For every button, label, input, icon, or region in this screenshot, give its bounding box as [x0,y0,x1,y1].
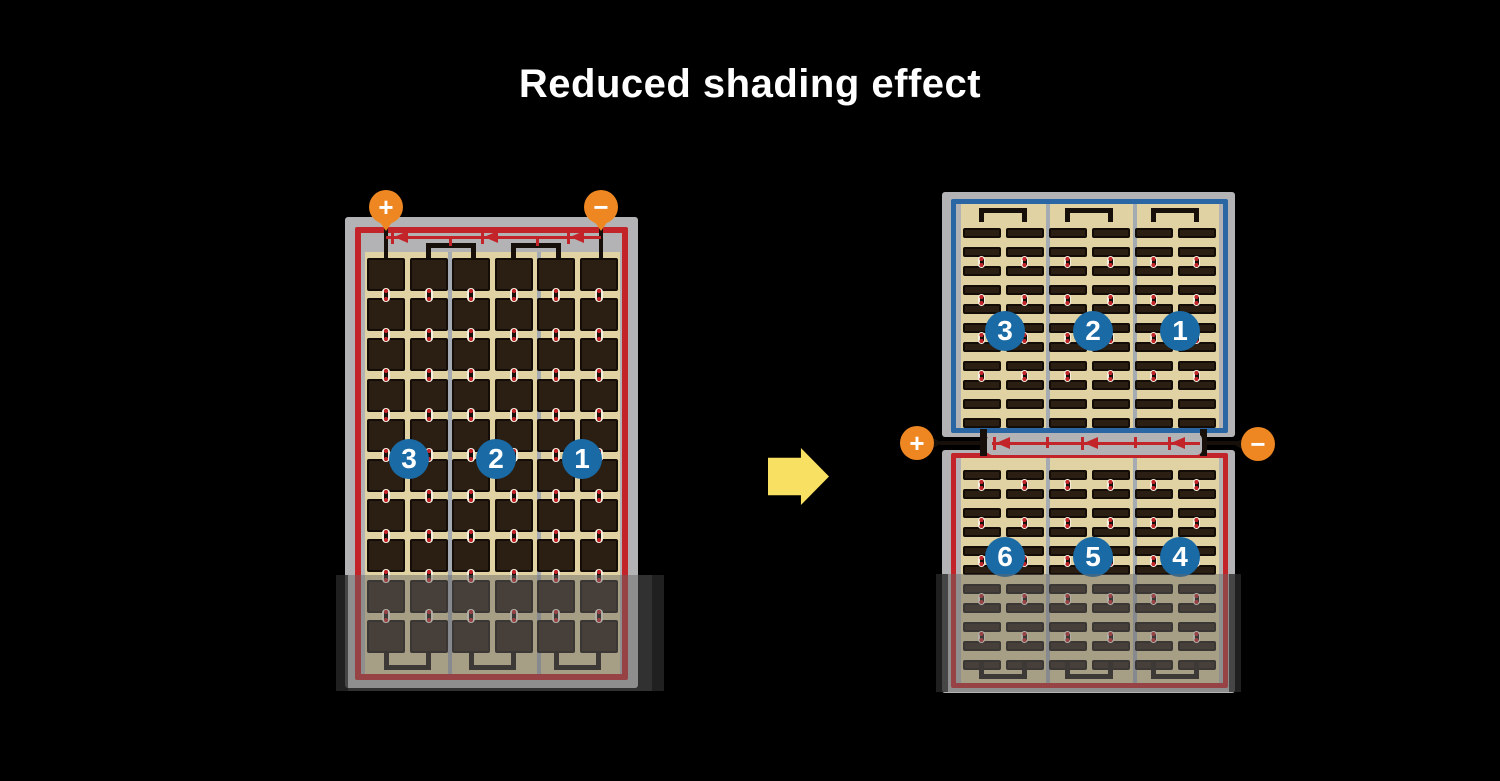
contact-dot [1107,256,1114,268]
solar-cell-bar [1092,399,1130,409]
terminal-plus: + [369,190,403,224]
solar-cell-bar [1006,418,1044,428]
contact-dot [978,517,985,529]
solar-cell-bar [1006,399,1044,409]
contact-dot [1150,294,1157,306]
terminal-plus: + [900,426,934,460]
contact-dot [1021,479,1028,491]
string-number-badge: 5 [1073,537,1113,577]
contact-dot [978,370,985,382]
solar-cell-bar [1135,304,1173,314]
string-jumper-top [979,208,1027,222]
solar-cell-bar [1092,228,1130,238]
diode-cathode-bar [1168,437,1171,450]
diode-cathode-bar [1081,437,1084,450]
contact-dot [1150,555,1157,567]
diode-junction-tick [1134,437,1137,448]
contact-dot [1064,555,1071,567]
solar-cell-bar [1178,380,1216,390]
contact-dot [1021,517,1028,529]
contact-dot [1064,256,1071,268]
solar-cell-bar [1092,418,1130,428]
contact-dot [1193,479,1200,491]
solar-cell-bar [963,418,1001,428]
string-number-badge: 1 [1160,311,1200,351]
contact-dot [1193,256,1200,268]
contact-dot [1150,256,1157,268]
solar-cell-bar [1178,527,1216,537]
solar-cell-bar [1135,527,1173,537]
solar-cell-bar [1178,489,1216,499]
contact-dot [1107,479,1114,491]
contact-dot [1107,294,1114,306]
string-number-badge: 2 [1073,311,1113,351]
contact-dot [1107,517,1114,529]
contact-dot [1064,332,1071,344]
solar-cell-bar [963,527,1001,537]
solar-cell-bar [1006,489,1044,499]
solar-cell-bar [1006,228,1044,238]
solar-cell-bar [1006,527,1044,537]
contact-dot [1021,294,1028,306]
solar-cell-bar [1006,380,1044,390]
string-number-badge: 6 [985,537,1025,577]
solar-cell-bar [963,266,1001,276]
solar-cell-bar [1049,489,1087,499]
contact-dot [1064,479,1071,491]
diagram-canvas: Reduced shading effect +−321 321654+− [0,0,1500,781]
solar-cell-bar [1135,489,1173,499]
solar-cell-bar [1049,527,1087,537]
solar-cell-bar [963,489,1001,499]
string-number-badge: 4 [1160,537,1200,577]
contact-dot [978,332,985,344]
solar-cell-bar [1049,266,1087,276]
solar-cell-bar [1049,399,1087,409]
contact-dot [978,294,985,306]
solar-cell-bar [1135,266,1173,276]
contact-dot [1150,479,1157,491]
bypass-diode-icon [1084,437,1098,449]
contact-dot [1150,517,1157,529]
contact-dot [1021,256,1028,268]
contact-dot [1064,370,1071,382]
solar-cell-bar [1178,228,1216,238]
contact-dot [1193,517,1200,529]
bypass-diode-icon [1171,437,1185,449]
shade-overlay [936,574,1241,692]
solar-cell-bar [1049,304,1087,314]
bypass-diode-icon [996,437,1010,449]
string-number-badge: 3 [985,311,1025,351]
contact-dot [978,479,985,491]
contact-dot [1064,294,1071,306]
after-panel-group: 321654+− [0,0,1500,781]
solar-cell-bar [1049,228,1087,238]
contact-dot [1064,517,1071,529]
solar-cell-bar [1135,399,1173,409]
contact-dot [978,555,985,567]
solar-cell-bar [1092,489,1130,499]
contact-dot [1193,370,1200,382]
contact-dot [1193,294,1200,306]
solar-cell-bar [1092,266,1130,276]
diode-junction-tick [1046,437,1049,448]
solar-cell-bar [1092,380,1130,390]
string-jumper-top [1065,208,1113,222]
solar-cell-bar [1049,418,1087,428]
wire-nub-icon [933,438,942,448]
solar-cell-bar [1092,527,1130,537]
solar-cell-bar [1178,399,1216,409]
string-jumper-top [1151,208,1199,222]
terminal-minus: − [1241,427,1275,461]
solar-cell-bar [963,228,1001,238]
contact-dot [1150,332,1157,344]
solar-cell-bar [1049,380,1087,390]
junction-end-bar [980,429,987,456]
contact-dot [1150,370,1157,382]
solar-cell-bar [963,380,1001,390]
solar-cell-bar [1135,228,1173,238]
diode-cathode-bar [993,437,996,450]
solar-cell-bar [1178,418,1216,428]
solar-cell-bar [1135,418,1173,428]
contact-dot [1021,370,1028,382]
solar-cell-bar [1006,266,1044,276]
solar-cell-bar [1178,266,1216,276]
contact-dot [1107,370,1114,382]
terminal-minus: − [584,190,618,224]
solar-cell-bar [1135,380,1173,390]
solar-cell-bar [963,399,1001,409]
contact-dot [978,256,985,268]
